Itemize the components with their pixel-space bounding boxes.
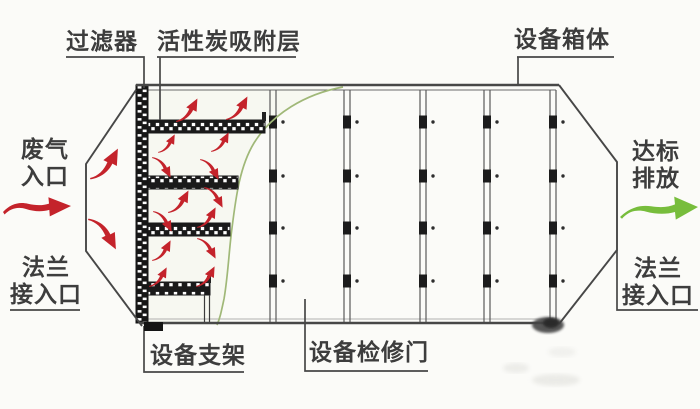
label-carbon-layer: 活性炭吸附层	[157, 28, 301, 55]
panel-dot	[355, 279, 358, 282]
panel-dot	[495, 279, 498, 282]
label-flange-inlet: 法兰 接入口	[8, 254, 84, 308]
panel-dot	[355, 120, 358, 123]
support-bracket-block	[144, 322, 163, 331]
panel-latch	[419, 275, 427, 288]
label-compliant-discharge: 达标 排放	[632, 138, 680, 192]
airflow-swoosh-icon	[88, 219, 116, 250]
panel-latch	[269, 275, 277, 288]
inlet-arrow-icon	[3, 197, 71, 216]
panel-dot	[495, 174, 498, 177]
label-flange-outlet: 法兰 接入口	[618, 255, 698, 309]
inlet-duct-outline	[86, 90, 142, 326]
panel-latch	[419, 222, 427, 235]
panel-dot	[281, 174, 284, 177]
label-line: 接入口	[8, 281, 84, 308]
panel-latch	[549, 116, 557, 129]
panel-dot	[495, 120, 498, 123]
right-corner-smudge	[532, 317, 564, 333]
panel-dot	[431, 226, 434, 229]
panel-latch	[419, 116, 427, 129]
outlet-duct-outline	[559, 85, 617, 324]
label-line: 排放	[632, 165, 680, 192]
carbon-bar	[146, 223, 230, 236]
label-equipment-box: 设备箱体	[514, 26, 610, 53]
leader-filter	[66, 57, 144, 88]
label-line: 入口	[21, 163, 69, 190]
panel-dot	[281, 226, 284, 229]
label-equipment-bracket: 设备支架	[150, 342, 246, 369]
filter-strip	[136, 85, 148, 323]
panel-dot	[561, 174, 564, 177]
outlet-arrow-icon	[620, 197, 698, 220]
panel-latch	[269, 222, 277, 235]
panel-latch	[343, 275, 351, 288]
panel-latch	[483, 116, 491, 129]
panel-latch	[343, 116, 351, 129]
label-line: 法兰	[8, 254, 84, 281]
panel-dot	[431, 174, 434, 177]
panel-latch	[343, 170, 351, 183]
panel-dot	[355, 174, 358, 177]
panel-dot	[281, 279, 284, 282]
carbon-bar-end-cap	[262, 112, 266, 121]
leader-lines	[10, 57, 698, 372]
panel-dot	[495, 226, 498, 229]
carbon-bar	[146, 176, 238, 189]
panel-latch	[269, 170, 277, 183]
panel-dot	[355, 226, 358, 229]
label-maintenance-door: 设备检修门	[309, 339, 429, 366]
label-line: 达标	[632, 138, 680, 165]
panel-latch	[343, 222, 351, 235]
panel-dot	[281, 120, 284, 123]
panel-latch	[549, 222, 557, 235]
panel-seams	[269, 90, 565, 322]
equipment-diagram: 过滤器 活性炭吸附层 设备箱体 废气 入口 法兰 接入口 达标 排放 法兰 接入…	[0, 0, 700, 409]
panel-dot	[431, 120, 434, 123]
label-filter: 过滤器	[66, 28, 138, 55]
panel-dot	[431, 279, 434, 282]
label-line: 接入口	[618, 282, 698, 309]
panel-dot	[561, 120, 564, 123]
label-line: 废气	[21, 136, 69, 163]
carbon-bar	[146, 120, 265, 133]
watermark-smudges	[503, 347, 580, 386]
panel-dot	[561, 279, 564, 282]
panel-latch	[549, 170, 557, 183]
panel-latch	[549, 275, 557, 288]
label-waste-gas-inlet: 废气 入口	[21, 136, 69, 190]
panel-latch	[483, 275, 491, 288]
panel-latch	[483, 170, 491, 183]
label-line: 法兰	[618, 255, 698, 282]
panel-latch	[419, 170, 427, 183]
panel-dot	[561, 226, 564, 229]
leader-equipment-box	[517, 57, 614, 85]
panel-latch	[483, 222, 491, 235]
